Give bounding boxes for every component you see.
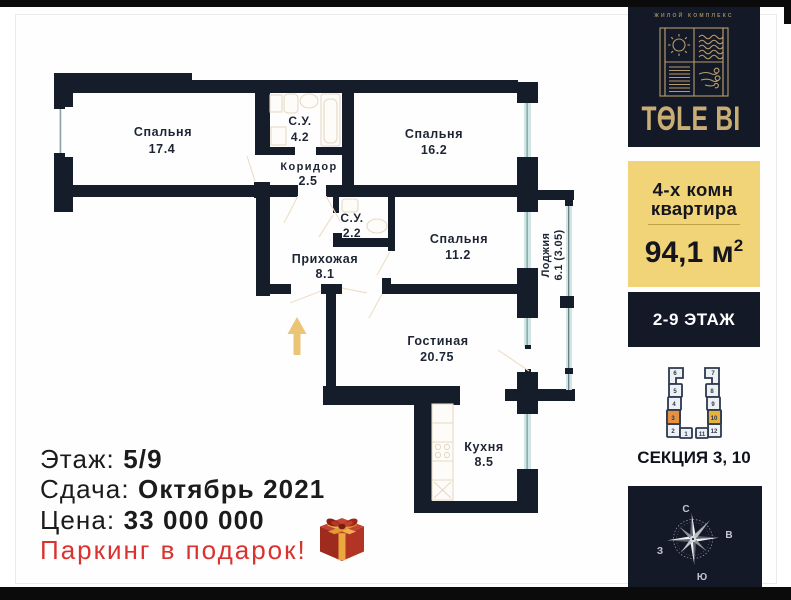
svg-text:10: 10 <box>711 416 718 422</box>
svg-text:12: 12 <box>711 429 718 435</box>
svg-text:В: В <box>725 530 732 541</box>
svg-text:С: С <box>682 504 689 515</box>
svg-text:З: З <box>657 546 663 557</box>
svg-text:Ю: Ю <box>697 572 707 583</box>
svg-text:11: 11 <box>699 432 706 438</box>
